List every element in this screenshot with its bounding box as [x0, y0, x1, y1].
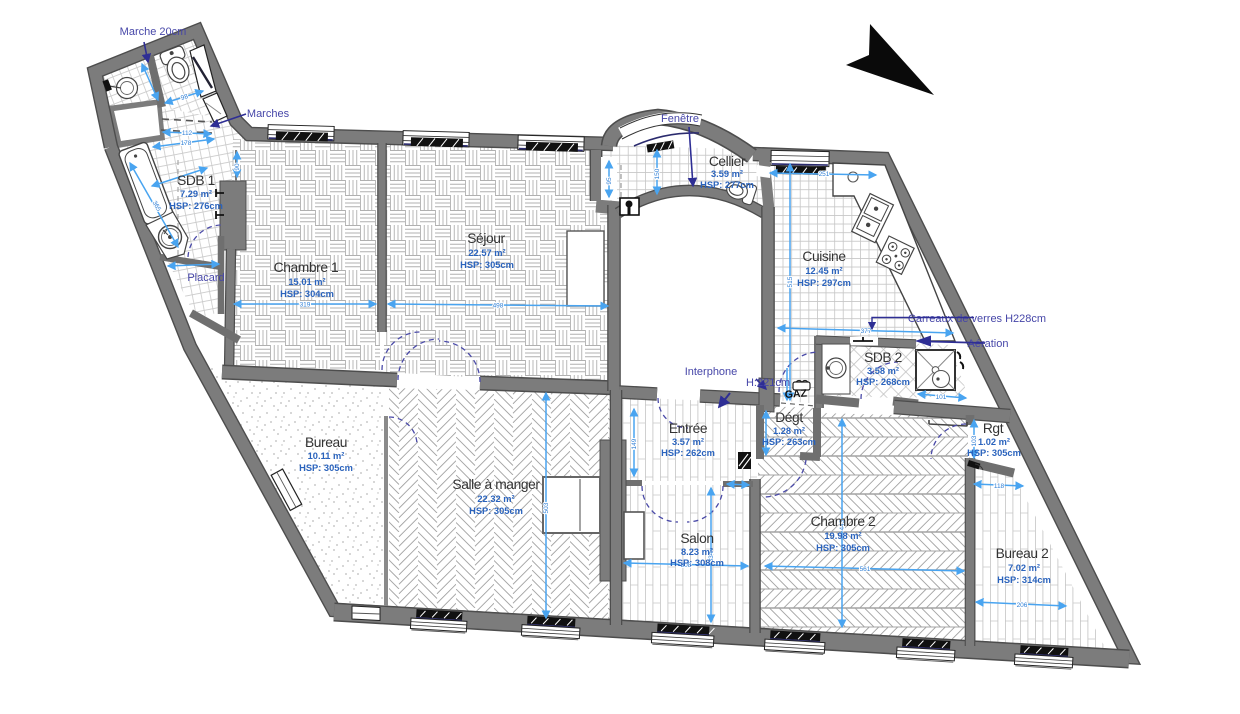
svg-text:HSP: 304cm: HSP: 304cm: [280, 289, 334, 299]
svg-text:HSP: 277cm: HSP: 277cm: [700, 180, 754, 190]
svg-text:Placard: Placard: [187, 272, 224, 284]
svg-text:112: 112: [182, 130, 193, 137]
svg-text:101: 101: [936, 394, 947, 401]
svg-text:Fenêtre: Fenêtre: [661, 113, 699, 125]
svg-text:HSP: 263cm: HSP: 263cm: [762, 437, 816, 447]
svg-text:178: 178: [181, 140, 192, 147]
svg-text:HSP: 314cm: HSP: 314cm: [997, 575, 1051, 585]
svg-text:515: 515: [787, 276, 794, 287]
svg-text:90: 90: [234, 163, 241, 171]
svg-text:15.01 m²: 15.01 m²: [288, 277, 325, 287]
svg-text:22.57 m²: 22.57 m²: [468, 248, 505, 258]
svg-text:Bureau: Bureau: [305, 435, 347, 450]
svg-text:HSP: 268cm: HSP: 268cm: [856, 377, 910, 387]
svg-text:Séjour: Séjour: [467, 231, 505, 246]
svg-text:HSP: 305cm: HSP: 305cm: [299, 463, 353, 473]
svg-text:HSP: 305cm: HSP: 305cm: [816, 543, 870, 553]
svg-text:Marche 20cm: Marche 20cm: [120, 26, 187, 38]
svg-text:3.58 m²: 3.58 m²: [867, 366, 899, 376]
svg-text:HSP: 297cm: HSP: 297cm: [797, 278, 851, 288]
svg-text:Cuisine: Cuisine: [802, 249, 846, 264]
svg-text:HSP: 262cm: HSP: 262cm: [661, 448, 715, 458]
svg-text:7.29 m²: 7.29 m²: [180, 189, 212, 199]
svg-text:HSP: 305cm: HSP: 305cm: [460, 260, 514, 270]
svg-text:Cellier: Cellier: [709, 154, 746, 169]
svg-text:Salle à manger: Salle à manger: [452, 477, 540, 492]
svg-text:561: 561: [860, 566, 871, 573]
svg-text:HSP: 276cm: HSP: 276cm: [169, 201, 223, 211]
svg-text:95: 95: [606, 177, 613, 185]
svg-text:Entrée: Entrée: [669, 421, 708, 436]
svg-text:206: 206: [1017, 602, 1028, 609]
svg-text:HSP: 308cm: HSP: 308cm: [670, 558, 724, 568]
svg-text:HSP: 305cm: HSP: 305cm: [469, 506, 523, 516]
svg-text:Bureau 2: Bureau 2: [996, 546, 1049, 561]
svg-text:Carreaux de verres H228cm: Carreaux de verres H228cm: [908, 313, 1046, 325]
svg-text:SDB 2: SDB 2: [864, 350, 902, 365]
svg-text:3.59 m²: 3.59 m²: [711, 169, 743, 179]
svg-text:150: 150: [654, 168, 661, 179]
svg-text:118: 118: [994, 483, 1005, 490]
svg-text:Chambre 2: Chambre 2: [811, 514, 876, 529]
svg-text:7.02 m²: 7.02 m²: [1008, 563, 1040, 573]
svg-text:1.02 m²: 1.02 m²: [978, 437, 1010, 447]
svg-text:503: 503: [543, 502, 550, 513]
svg-text:Rgt: Rgt: [983, 421, 1004, 436]
svg-text:22.32 m²: 22.32 m²: [477, 494, 514, 504]
svg-text:103: 103: [971, 435, 978, 446]
svg-text:Interphone: Interphone: [685, 366, 738, 378]
svg-text:Marches: Marches: [247, 108, 290, 120]
svg-text:Aération: Aération: [968, 338, 1009, 350]
svg-text:19.98 m²: 19.98 m²: [824, 531, 861, 541]
svg-text:251: 251: [819, 171, 830, 178]
svg-text:319: 319: [300, 302, 311, 309]
svg-text:Chambre 1: Chambre 1: [274, 260, 339, 275]
svg-text:H:221cm: H:221cm: [746, 377, 790, 389]
svg-text:1.28 m²: 1.28 m²: [773, 426, 805, 436]
svg-text:10.11 m²: 10.11 m²: [308, 451, 345, 461]
svg-text:HSP: 305cm: HSP: 305cm: [967, 448, 1021, 458]
svg-text:SDB 1: SDB 1: [177, 173, 215, 188]
svg-text:8.23 m²: 8.23 m²: [681, 547, 713, 557]
svg-text:3.57 m²: 3.57 m²: [672, 437, 704, 447]
svg-text:Dégt: Dégt: [775, 410, 803, 425]
svg-text:Salon: Salon: [680, 531, 713, 546]
svg-text:498: 498: [493, 303, 504, 310]
svg-text:149: 149: [631, 438, 638, 449]
svg-text:12.45 m²: 12.45 m²: [805, 266, 842, 276]
svg-text:377: 377: [861, 328, 872, 335]
svg-text:GAZ: GAZ: [784, 387, 808, 401]
